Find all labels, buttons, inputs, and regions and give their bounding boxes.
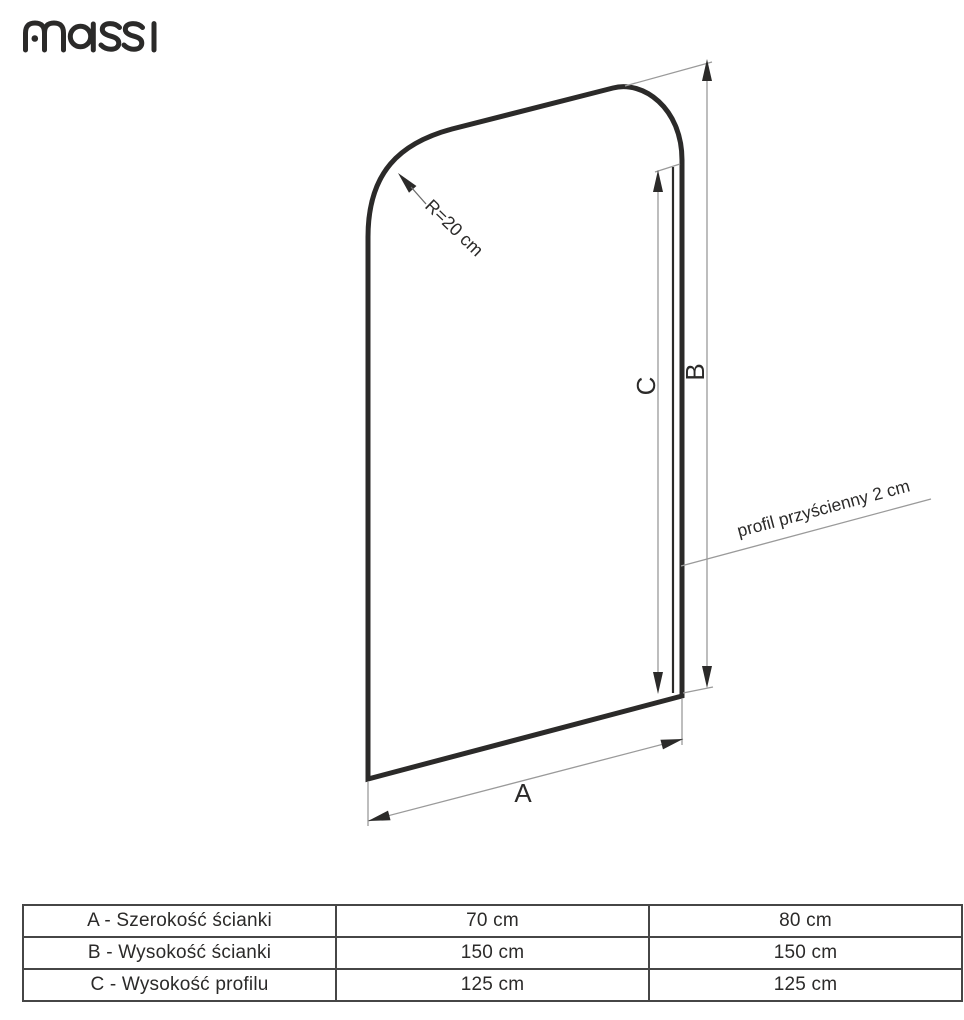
row-c-value-70: 125 cm [336,969,649,1001]
dim-b-extension-bottom [683,687,713,693]
row-a-label: A - Szerokość ścianki [23,905,336,937]
dim-c-label: C [631,377,661,396]
technical-drawing: A B C R=20 cm profil przyścienny 2 cm [0,0,964,900]
dim-a-label: A [514,778,532,808]
row-b-label: B - Wysokość ścianki [23,937,336,969]
row-a-value-70: 70 cm [336,905,649,937]
product-spec-sheet: massi [0,0,964,1020]
table-row-c: C - Wysokość profilu 125 cm 125 cm [23,969,962,1001]
dim-b-arrow-bottom [702,666,712,688]
table-row-b: B - Wysokość ścianki 150 cm 150 cm [23,937,962,969]
dim-b-label: B [680,363,710,380]
profile-label: profil przyścienny 2 cm [735,476,912,541]
panel-outline [368,87,682,779]
table-row-a: A - Szerokość ścianki 70 cm 80 cm [23,905,962,937]
dimensions-table: A - Szerokość ścianki 70 cm 80 cm B - Wy… [22,904,963,1002]
row-b-value-70: 150 cm [336,937,649,969]
dim-a-arrow-right [660,734,684,749]
row-a-value-80: 80 cm [649,905,962,937]
row-c-value-80: 125 cm [649,969,962,1001]
dim-b-extension-top [625,62,712,86]
dim-a-arrow-left [367,811,391,826]
row-b-value-80: 150 cm [649,937,962,969]
row-c-label: C - Wysokość profilu [23,969,336,1001]
